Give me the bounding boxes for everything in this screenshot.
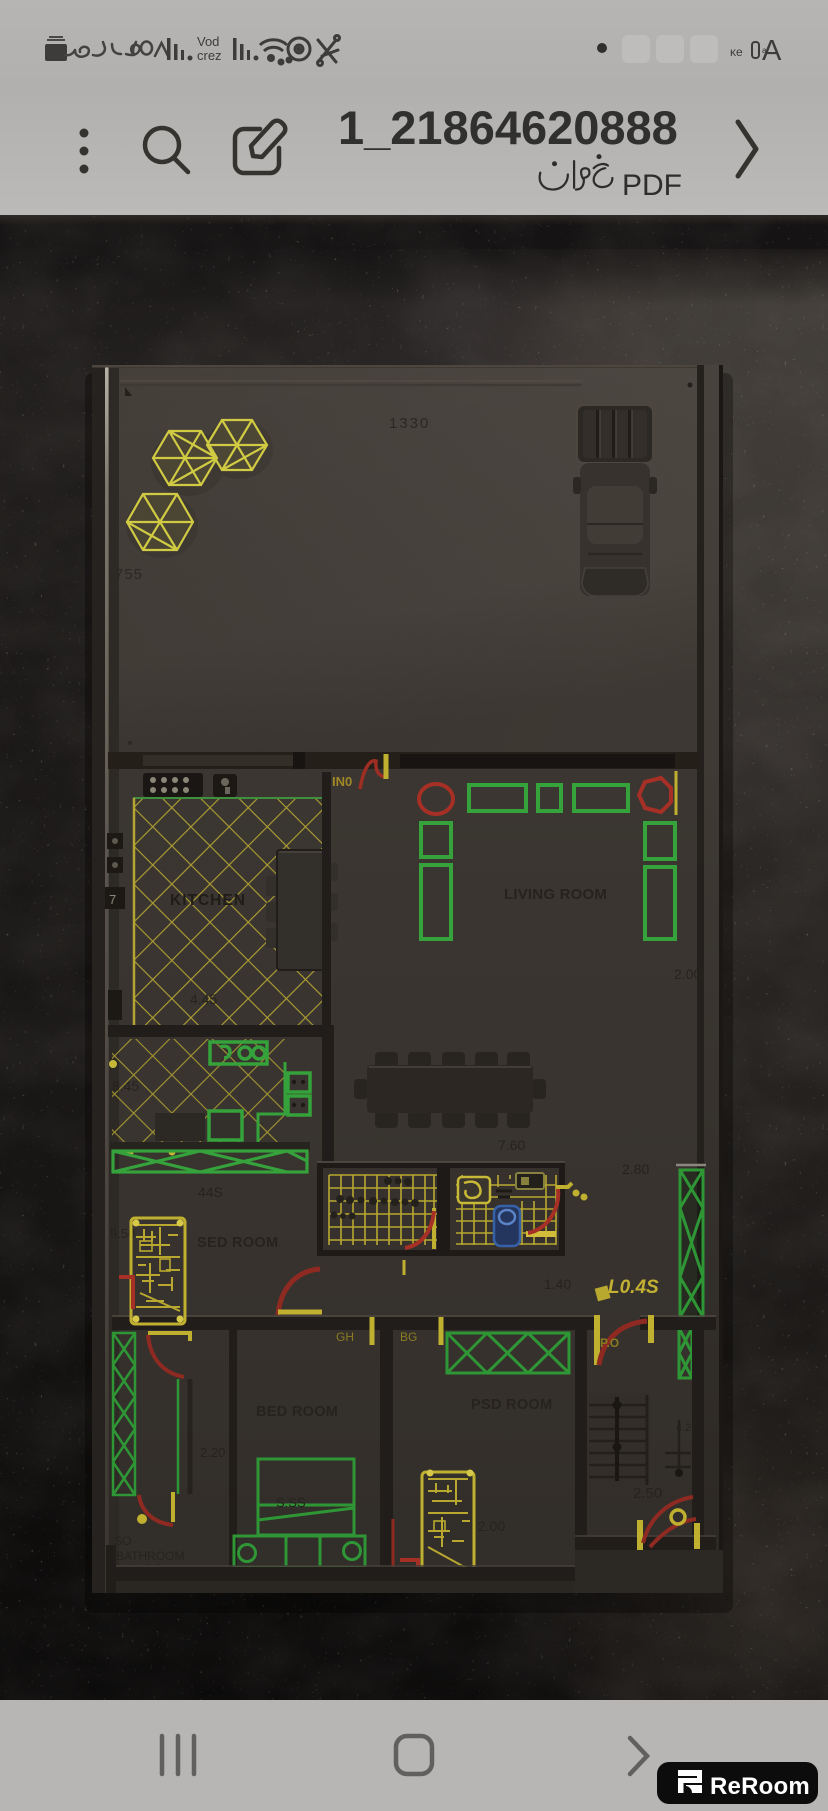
svg-text:SO: SO [114, 1534, 131, 1548]
svg-text:BATHROOM: BATHROOM [116, 1549, 184, 1563]
svg-text:2.20: 2.20 [200, 1445, 225, 1460]
svg-text:44S: 44S [198, 1184, 223, 1200]
svg-text:1330: 1330 [389, 415, 430, 432]
svg-text:755: 755 [115, 566, 143, 583]
svg-text:A: A [762, 35, 782, 67]
svg-text:4.45: 4.45 [190, 991, 217, 1007]
svg-text:S.SS: S.SS [276, 1495, 306, 1510]
svg-text:1.40: 1.40 [544, 1276, 571, 1292]
svg-text:crez: crez [197, 48, 222, 63]
svg-text:LIVING ROOM: LIVING ROOM [504, 886, 607, 903]
svg-text:PDF: PDF [622, 169, 682, 202]
svg-text:IN0: IN0 [332, 774, 352, 789]
svg-text:2.00: 2.00 [478, 1518, 505, 1534]
svg-text:PSD ROOM: PSD ROOM [471, 1397, 552, 1413]
svg-text:BG: BG [400, 1330, 417, 1344]
svg-text:BED ROOM: BED ROOM [256, 1404, 338, 1420]
svg-text:ReRoom: ReRoom [710, 1773, 810, 1800]
svg-text:Vod: Vod [197, 34, 219, 49]
svg-text:4.2: 4.2 [676, 1422, 691, 1434]
svg-text:7: 7 [109, 892, 116, 907]
svg-text:2.50: 2.50 [633, 1485, 662, 1502]
svg-text:ĸe: ĸe [730, 45, 743, 59]
svg-text:8.45: 8.45 [112, 1078, 139, 1094]
svg-text:L0.4S: L0.4S [608, 1277, 659, 1298]
svg-text:2.00: 2.00 [674, 966, 701, 982]
svg-text:SED ROOM: SED ROOM [197, 1235, 278, 1251]
svg-text:KITCHEN: KITCHEN [170, 892, 246, 909]
svg-text:7.60: 7.60 [498, 1137, 525, 1153]
svg-text:GH: GH [336, 1330, 354, 1344]
svg-text:P.O: P.O [600, 1336, 619, 1350]
svg-text:2.80: 2.80 [622, 1161, 649, 1177]
